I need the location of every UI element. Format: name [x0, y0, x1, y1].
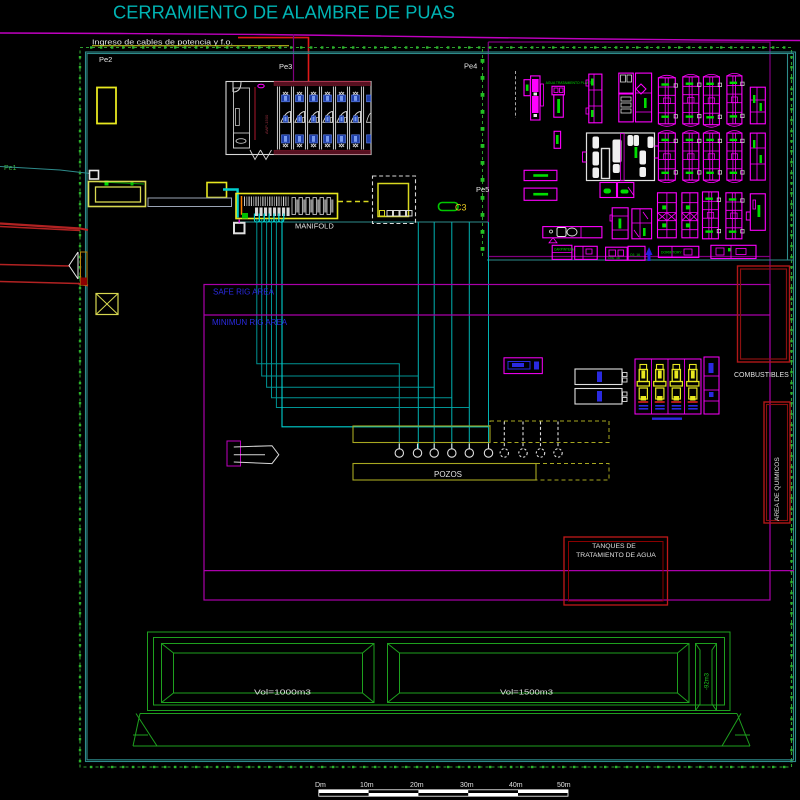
svg-text:DORMITORY: DORMITORY: [661, 251, 682, 255]
svg-text:Pe2: Pe2: [99, 55, 112, 64]
svg-text:Vol=1500m3: Vol=1500m3: [500, 688, 553, 697]
svg-text:Pe1: Pe1: [4, 165, 17, 172]
svg-text:30m: 30m: [460, 782, 474, 789]
svg-text:C3: C3: [455, 203, 467, 213]
svg-text:POZOS: POZOS: [434, 470, 462, 479]
svg-text:Pe3: Pe3: [279, 62, 292, 71]
svg-text:CARPINTERIA: CARPINTERIA: [554, 248, 576, 252]
svg-text:-92m3: -92m3: [705, 672, 711, 690]
svg-text:TRATAMIENTO DE AGUA: TRATAMIENTO DE AGUA: [576, 552, 656, 559]
svg-text:C6_16: C6_16: [630, 253, 640, 257]
svg-text:COMBUSTIBLES: COMBUSTIBLES: [734, 372, 789, 379]
svg-text:Pe4: Pe4: [464, 62, 477, 71]
svg-text:20m: 20m: [410, 782, 424, 789]
svg-text:AREA DE QUIMICOS: AREA DE QUIMICOS: [774, 457, 781, 521]
svg-text:TANQUES DE: TANQUES DE: [592, 543, 636, 550]
svg-text:MANIFOLD: MANIFOLD: [295, 222, 334, 231]
svg-text:CERRAMIENTO DE ALAMBRE DE PUAS: CERRAMIENTO DE ALAMBRE DE PUAS: [113, 2, 455, 23]
svg-text:Vol=1000m3: Vol=1000m3: [254, 688, 311, 697]
svg-text:Dm: Dm: [315, 782, 326, 789]
svg-text:50m: 50m: [557, 782, 571, 789]
svg-text:10m: 10m: [360, 782, 374, 789]
svg-text:AGUA TRATAMIENTO PLANT: AGUA TRATAMIENTO PLANT: [546, 81, 592, 85]
svg-text:Pe5: Pe5: [476, 185, 489, 194]
svg-text:40m: 40m: [509, 782, 523, 789]
svg-text:CNL_16: CNL_16: [608, 256, 620, 260]
svg-text:MINIMUN RIG AREA: MINIMUN RIG AREA: [212, 318, 288, 327]
svg-text:Ingreso de cables de potencia: Ingreso de cables de potencia y f.o.: [92, 38, 233, 47]
svg-text:AWP-1500: AWP-1500: [264, 114, 269, 134]
svg-text:SAFE RIG AREA: SAFE RIG AREA: [213, 288, 275, 297]
